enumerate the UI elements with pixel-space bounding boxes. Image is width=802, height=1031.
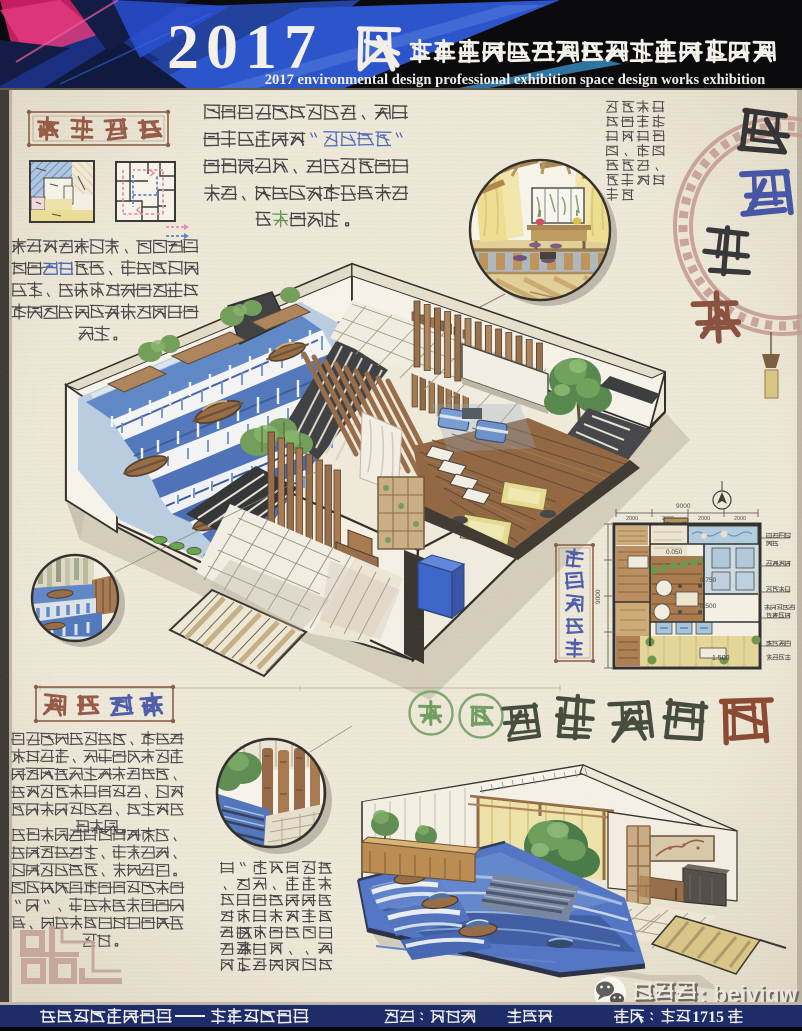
svg-text:2017 environmental design prof: 2017 environmental design professional e… (265, 72, 766, 88)
svg-text:1715: 1715 (692, 1009, 724, 1026)
